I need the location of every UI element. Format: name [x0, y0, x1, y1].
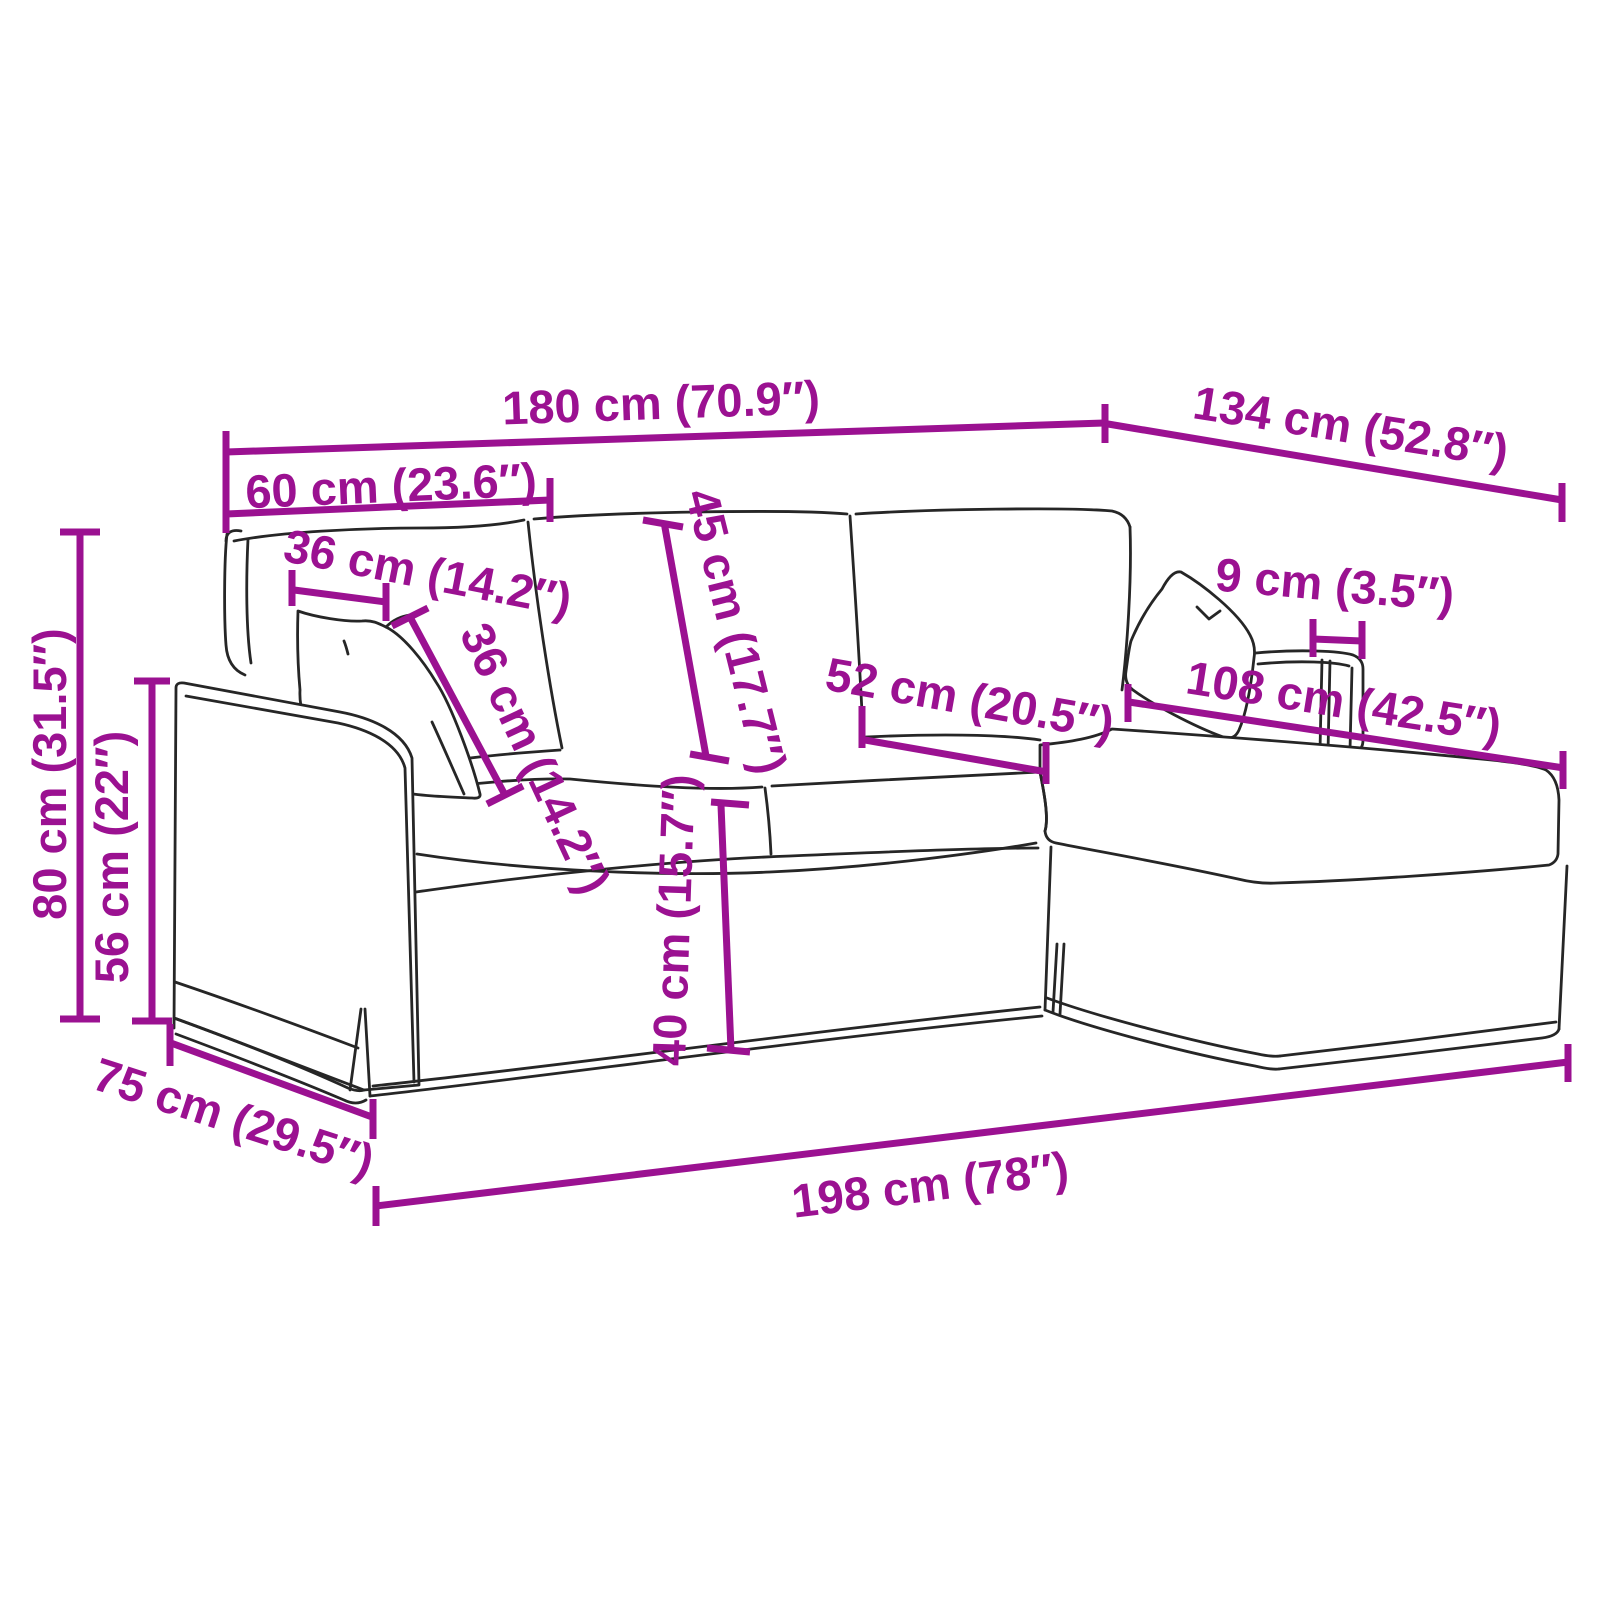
svg-text:180 cm (70.9″): 180 cm (70.9″): [501, 370, 820, 434]
svg-text:40 cm (15.7″): 40 cm (15.7″): [642, 773, 705, 1066]
svg-text:80 cm (31.5″): 80 cm (31.5″): [23, 628, 76, 920]
svg-text:56 cm (22″): 56 cm (22″): [85, 731, 138, 983]
